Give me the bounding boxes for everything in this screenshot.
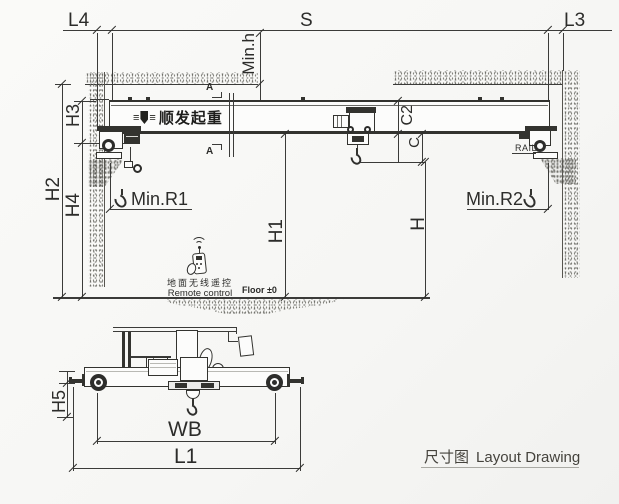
dim-underline-min-r2	[467, 209, 549, 210]
drawing-title-en: Layout Drawing	[476, 449, 580, 466]
machine-line	[150, 367, 176, 368]
girder-clamp	[301, 97, 305, 101]
rail-seat-line-left	[90, 99, 109, 100]
girder-clamp	[478, 97, 482, 101]
brand-logo: ≡ ≡ 顺发起重	[133, 107, 223, 128]
dim-line-h1	[285, 134, 286, 297]
floor-hatch	[162, 299, 344, 316]
girder-walkway-line	[111, 105, 548, 106]
ceiling-hatch-left	[85, 72, 258, 85]
hoist-crossbeam-block	[201, 383, 214, 388]
festoon-wheel	[133, 164, 142, 173]
hook-icon	[112, 192, 129, 210]
hoist-crossbeam-block	[175, 383, 187, 388]
runway-rail-right	[533, 152, 558, 159]
extension-wb-left	[97, 393, 98, 444]
hook-icon	[184, 402, 199, 418]
hoist-drum	[352, 136, 364, 142]
girder-clamp	[146, 97, 150, 101]
dim-label-h1: H1	[267, 219, 286, 243]
dim-label-min-r2: Min.R2	[466, 190, 523, 208]
top-dimension-line	[63, 30, 612, 31]
buffer-right	[301, 377, 304, 384]
wheel-hub	[96, 380, 101, 385]
corbel-right	[540, 158, 576, 184]
walkway-plate	[113, 331, 237, 332]
trolley-wheel	[364, 126, 371, 133]
section-marker-a-bottom: A	[206, 147, 213, 157]
festoon-box	[124, 161, 133, 168]
brand-wings-icon: ≡ ≡	[133, 111, 156, 124]
dim-line-l1	[73, 468, 300, 469]
dim-label-l1: L1	[174, 446, 197, 467]
layout-drawing: L4 S L3 Min.h H2 H3 H4 ≡ ≡ 顺发起重 A A	[0, 0, 619, 504]
dim-label-min-r1: Min.R1	[131, 190, 188, 208]
remote-button	[196, 263, 198, 265]
floor-label: Floor ±0	[242, 286, 277, 295]
section-line-a	[233, 93, 234, 157]
extension-wb-right	[275, 393, 276, 444]
cabinet-box	[238, 335, 254, 357]
drawing-title: 尺寸图 Layout Drawing	[424, 446, 580, 467]
dim-line-min-r2	[548, 163, 549, 209]
travel-wheel-left	[102, 139, 115, 152]
dim-label-h3: H3	[64, 104, 82, 127]
extension-line-rail-left	[97, 33, 98, 127]
remote-button	[200, 263, 202, 265]
dim-label-c2: C2	[400, 105, 416, 125]
remote-label-cn: 地面无线遥控	[167, 279, 233, 288]
dim-line-min-h	[260, 33, 261, 100]
machine-line	[126, 136, 138, 137]
remote-label-en: Remote control	[165, 289, 235, 299]
hook-level-line	[360, 162, 426, 163]
motor-fin	[337, 116, 338, 127]
section-bracket	[221, 144, 222, 150]
ceiling-hatch-right	[393, 70, 563, 85]
corbel-left	[88, 159, 124, 187]
brand-text: 顺发起重	[159, 107, 223, 128]
floor-line	[53, 297, 430, 299]
end-truck-motor-right	[519, 132, 529, 139]
rail-label-underline	[512, 153, 536, 154]
extension-l1-left	[73, 387, 74, 471]
dim-label-wb: WB	[168, 419, 202, 440]
buffer-right	[289, 379, 301, 383]
dim-line-wb	[97, 441, 275, 442]
wheel-hub	[272, 380, 277, 385]
dim-label-h: H	[409, 217, 428, 231]
extension-ceiling	[55, 84, 71, 85]
section-line-a	[229, 93, 230, 157]
title-underline	[421, 467, 579, 468]
dim-underline-min-r1	[110, 209, 192, 210]
extension-beam-top	[74, 101, 96, 102]
dim-label-l3: L3	[564, 11, 585, 30]
rail-label: RAIL	[515, 144, 537, 153]
remote-screen	[196, 256, 202, 260]
section-marker-a-top: A	[206, 83, 213, 93]
end-truck-motor-left	[124, 133, 140, 144]
buffer-right	[287, 374, 290, 386]
remote-button	[198, 267, 200, 269]
hook-icon	[521, 192, 538, 210]
dim-label-l4: L4	[68, 11, 89, 30]
dim-label-h2: H2	[44, 177, 63, 201]
extension-h5	[59, 371, 75, 372]
girder-clamp	[500, 97, 504, 101]
walkway-edge	[236, 327, 237, 334]
dim-label-s: S	[300, 11, 313, 30]
walkway-bracket	[228, 341, 238, 342]
extension-line-wall-right	[563, 33, 564, 71]
runway-rail-left	[96, 152, 122, 159]
extension-line-beam-left	[112, 33, 113, 100]
dim-label-h5: H5	[50, 390, 68, 413]
dim-label-h4: H4	[64, 193, 83, 217]
motor-fin	[341, 116, 342, 127]
trolley-wheel	[347, 126, 354, 133]
dim-label-min-h: Min.h	[240, 33, 257, 75]
hoist-front-body	[180, 357, 208, 381]
section-bracket	[221, 92, 222, 98]
dim-label-c: C	[407, 137, 422, 148]
dim-line-min-r1	[110, 163, 111, 209]
hook-icon	[348, 151, 363, 167]
machine-line	[150, 363, 176, 364]
drawing-title-cn: 尺寸图	[424, 446, 469, 467]
buffer-left	[82, 374, 85, 386]
girder-clamp	[128, 97, 132, 101]
extension-l1-right	[300, 387, 301, 471]
walkway-plate	[113, 327, 237, 328]
